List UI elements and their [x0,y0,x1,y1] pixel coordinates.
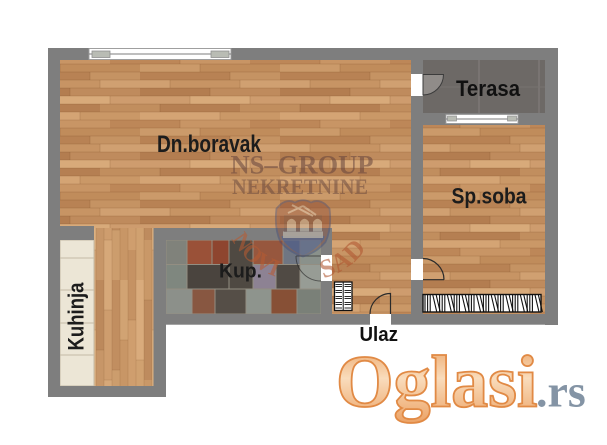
svg-text:Kuhinja: Kuhinja [64,282,89,350]
svg-text:Sp.soba: Sp.soba [452,184,528,209]
svg-text:Terasa: Terasa [456,76,521,101]
svg-text:NEKRETNINE: NEKRETNINE [232,174,368,199]
svg-text:.rs: .rs [536,366,586,417]
svg-text:Oglasi: Oglasi [336,342,537,424]
